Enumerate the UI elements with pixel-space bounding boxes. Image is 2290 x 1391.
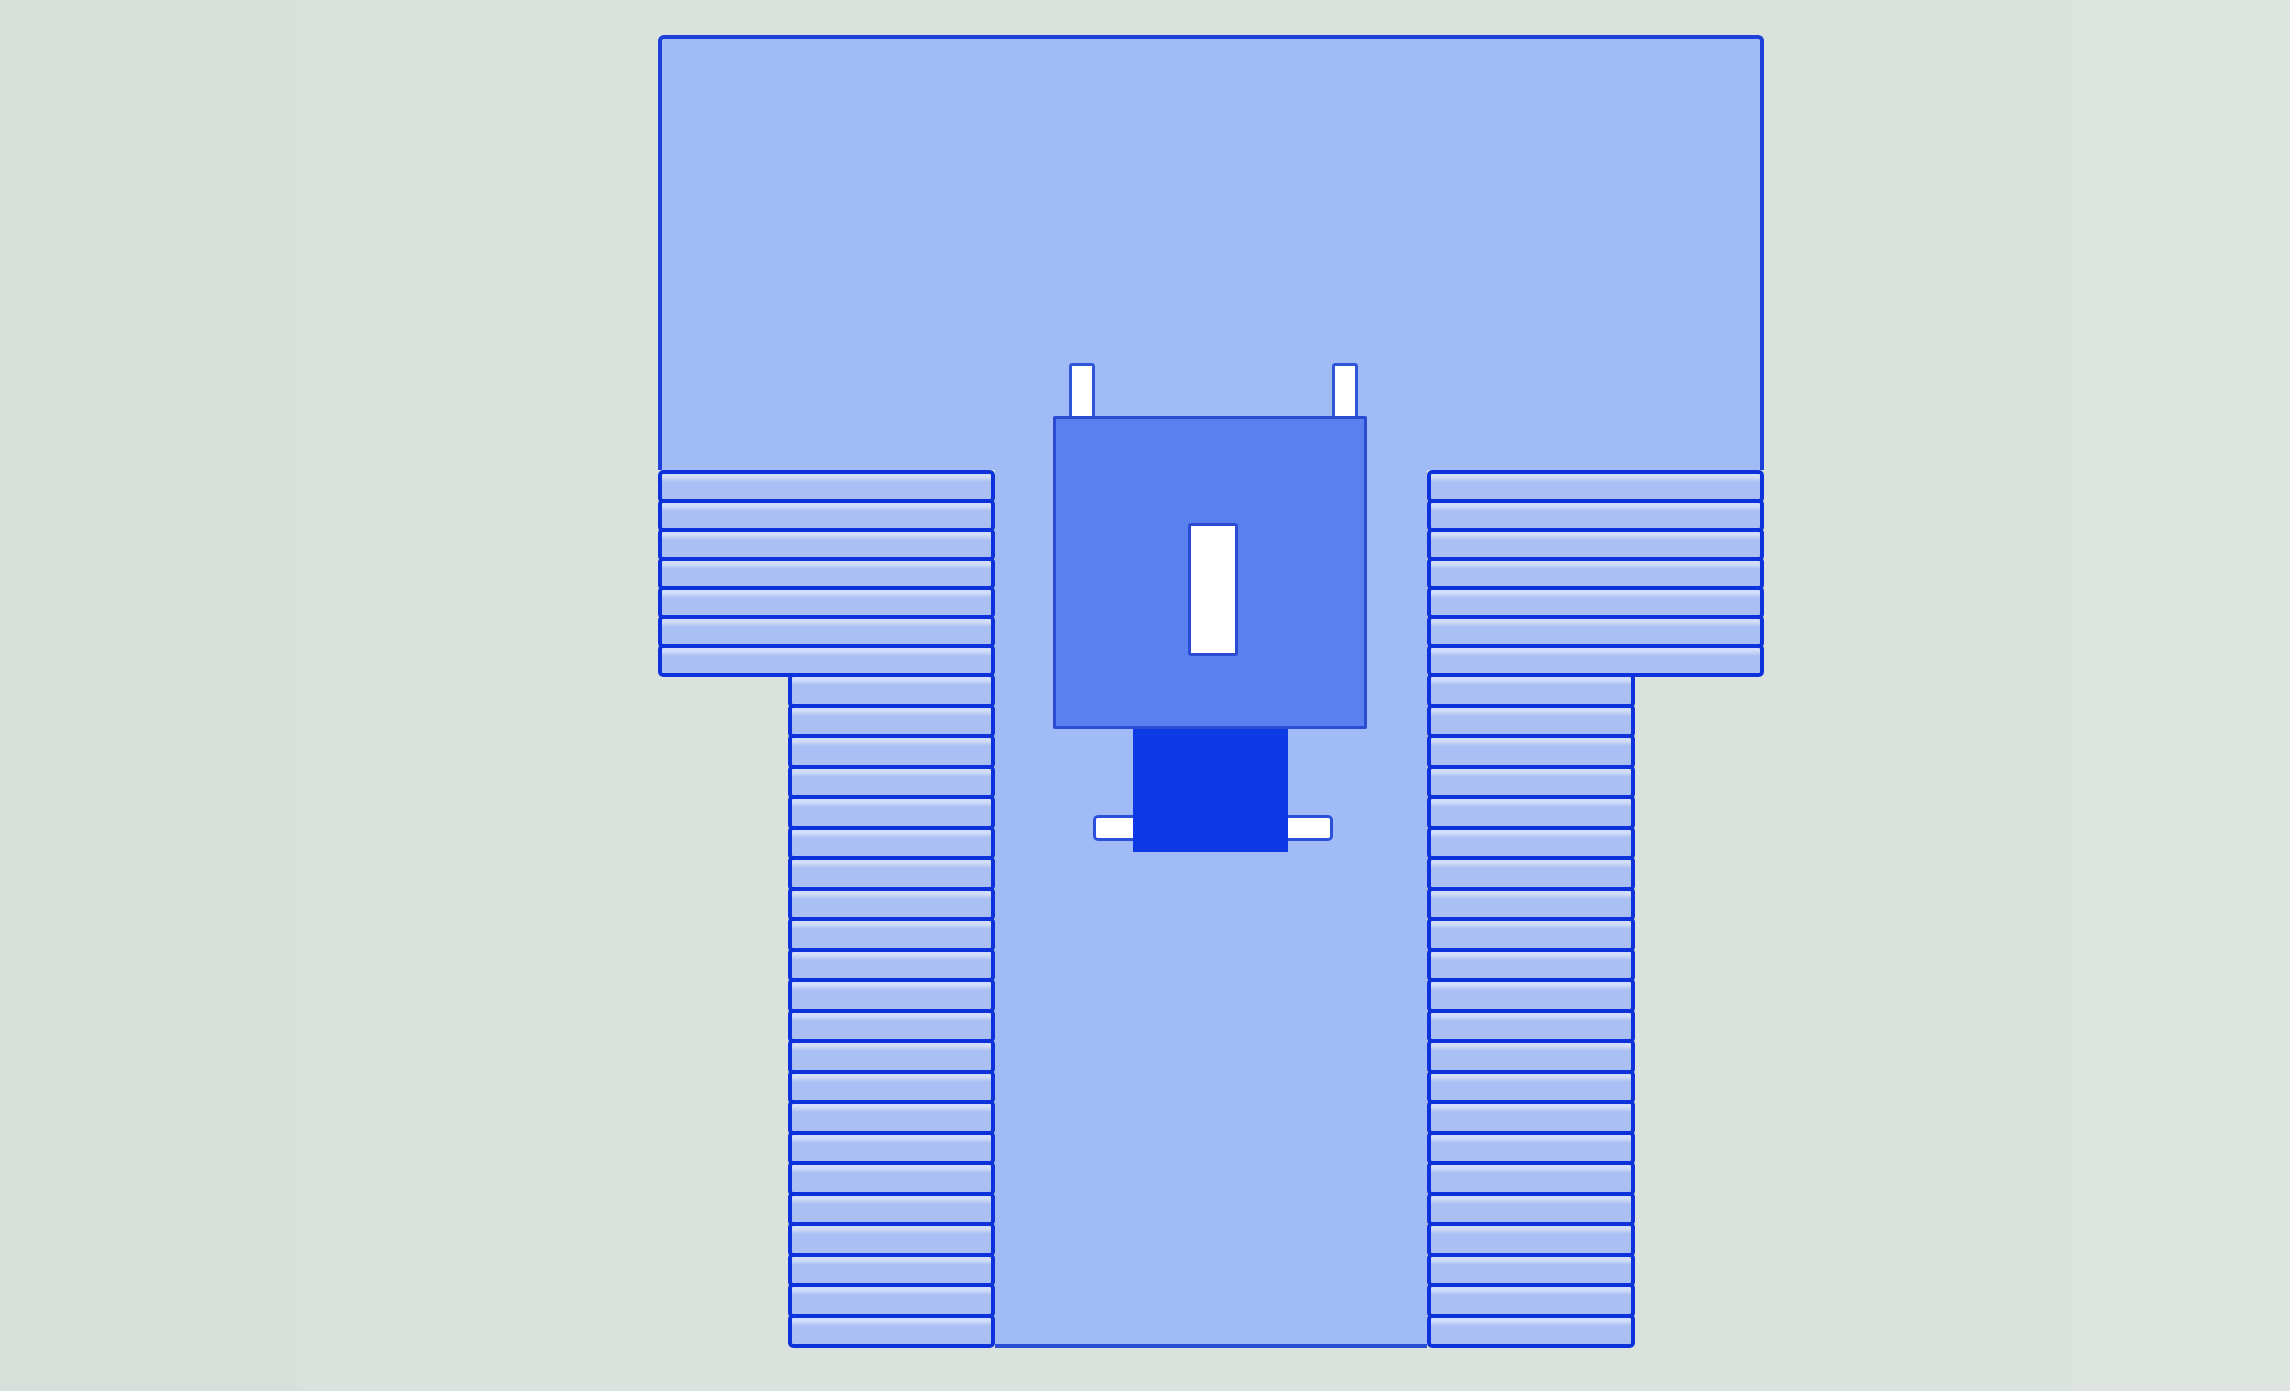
- pleat-band: [1427, 734, 1635, 769]
- pleat-band: [1427, 1161, 1635, 1196]
- pleat-band: [1427, 856, 1635, 891]
- pleat-column-right-lower: [1427, 673, 1635, 1348]
- pleat-band: [788, 1131, 995, 1166]
- surgical-drape: [0, 0, 2290, 1391]
- pleat-band: [1427, 948, 1635, 983]
- fenestration-slot: [1188, 523, 1238, 656]
- pleat-band: [1427, 1070, 1635, 1105]
- pleat-band: [1427, 1039, 1635, 1074]
- pleat-band: [788, 1222, 995, 1257]
- fenestration-panel: [1053, 416, 1367, 729]
- drape-top-panel: [658, 35, 1764, 470]
- pleat-band: [788, 1070, 995, 1105]
- pleat-band: [1427, 1192, 1635, 1227]
- pleat-band: [1427, 1100, 1635, 1135]
- pleat-band: [788, 765, 995, 800]
- pleat-band: [788, 1283, 995, 1318]
- pleat-column-left-lower: [788, 673, 995, 1348]
- pleat-band: [788, 673, 995, 708]
- pleat-band: [1427, 704, 1635, 739]
- pleat-band: [788, 1253, 995, 1288]
- pleat-band: [1427, 1222, 1635, 1257]
- pleat-band: [1427, 795, 1635, 830]
- pleat-band: [788, 1161, 995, 1196]
- pleat-column-right-upper: [1427, 470, 1764, 677]
- pleat-band: [1427, 765, 1635, 800]
- pleat-band: [788, 948, 995, 983]
- pleat-band: [788, 856, 995, 891]
- pleat-band: [1427, 917, 1635, 952]
- pleat-band: [1427, 826, 1635, 861]
- pleat-column-left-upper: [658, 470, 995, 677]
- pleat-band: [788, 978, 995, 1013]
- pleat-band: [1427, 978, 1635, 1013]
- pleat-band: [788, 1009, 995, 1044]
- pleat-band: [1427, 673, 1635, 708]
- fixation-tab-right: [1332, 363, 1358, 421]
- pleat-band: [1427, 887, 1635, 922]
- diagram-canvas: [0, 0, 2290, 1391]
- pleat-band: [788, 1192, 995, 1227]
- pleat-band: [788, 1039, 995, 1074]
- pleat-band: [1427, 1253, 1635, 1288]
- pleat-band: [1427, 1009, 1635, 1044]
- pleat-band: [788, 887, 995, 922]
- pleat-band: [1427, 1131, 1635, 1166]
- fixation-tab-left: [1069, 363, 1095, 421]
- pleat-band: [788, 795, 995, 830]
- pleat-band: [1427, 1314, 1635, 1349]
- pleat-band: [1427, 1283, 1635, 1318]
- pleat-band: [788, 917, 995, 952]
- pleat-band: [788, 826, 995, 861]
- fluid-pouch: [1133, 729, 1288, 852]
- pleat-band: [788, 1100, 995, 1135]
- pleat-band: [788, 704, 995, 739]
- pleat-band: [788, 734, 995, 769]
- pleat-band: [788, 1314, 995, 1349]
